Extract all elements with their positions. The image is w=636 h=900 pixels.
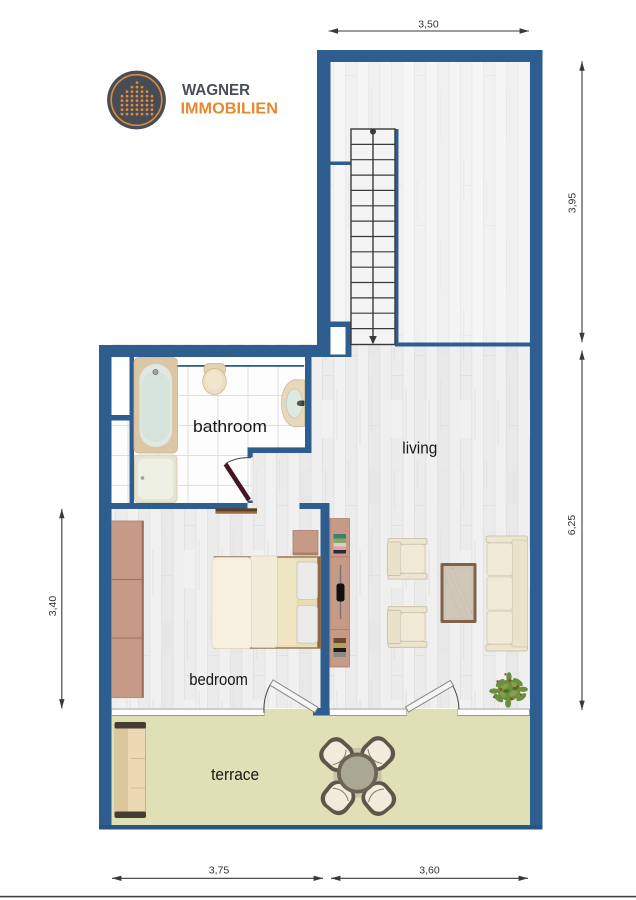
svg-text:3,40: 3,40	[47, 596, 59, 617]
svg-text:3,95: 3,95	[567, 193, 579, 214]
svg-text:bedroom: bedroom	[189, 670, 248, 689]
svg-text:bathroom: bathroom	[193, 417, 267, 436]
svg-text:IMMOBILIEN: IMMOBILIEN	[181, 101, 279, 118]
svg-text:3,60: 3,60	[419, 865, 440, 877]
svg-text:terrace: terrace	[211, 765, 259, 784]
svg-text:WAGNER: WAGNER	[182, 82, 250, 99]
svg-text:3,75: 3,75	[209, 865, 230, 877]
svg-text:3,50: 3,50	[418, 19, 439, 31]
svg-text:6,25: 6,25	[566, 515, 578, 536]
svg-text:living: living	[402, 439, 437, 458]
